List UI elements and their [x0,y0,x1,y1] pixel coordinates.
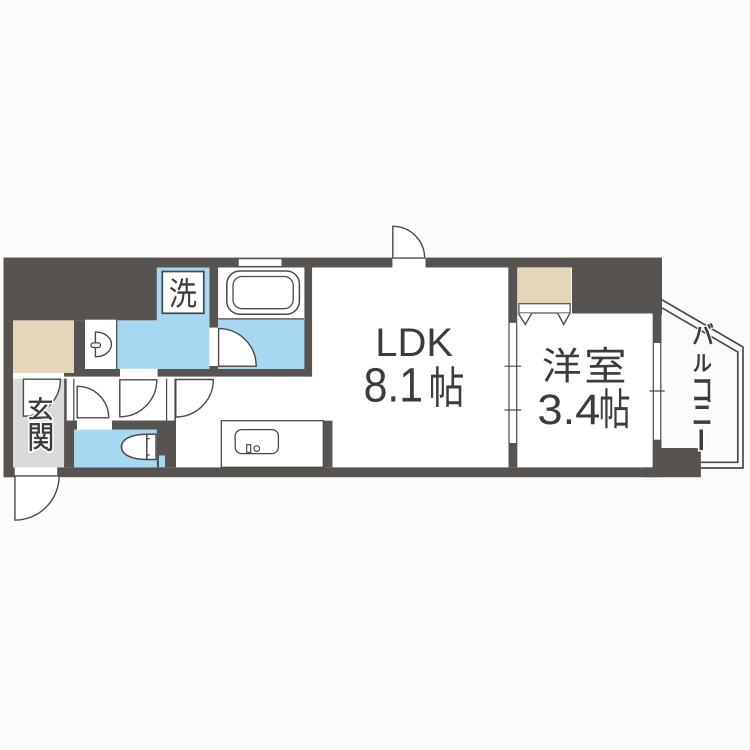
svg-text:LDK: LDK [375,321,453,365]
svg-text:3.4: 3.4 [537,387,600,434]
svg-text:8.1: 8.1 [364,360,424,413]
